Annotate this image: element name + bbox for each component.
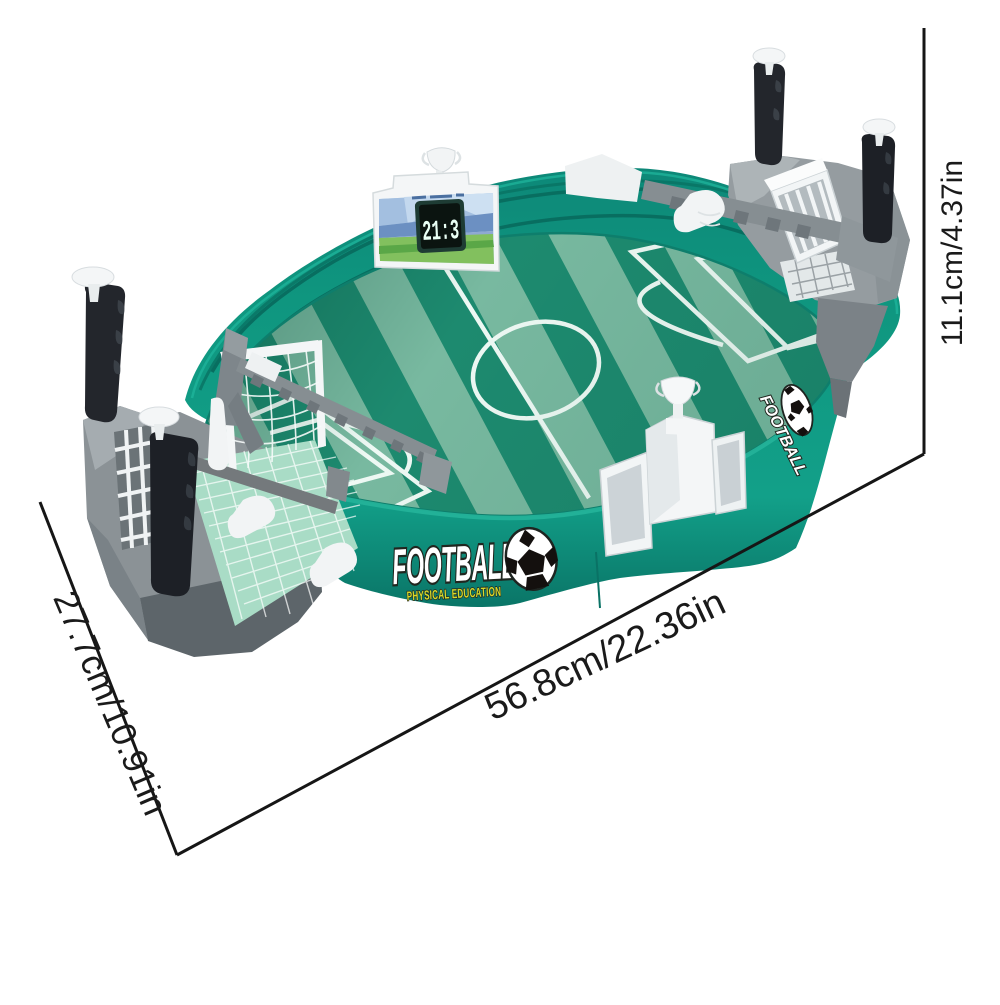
- svg-text:11.1cm/4.37in: 11.1cm/4.37in: [936, 160, 969, 346]
- svg-text:21:3: 21:3: [422, 216, 461, 249]
